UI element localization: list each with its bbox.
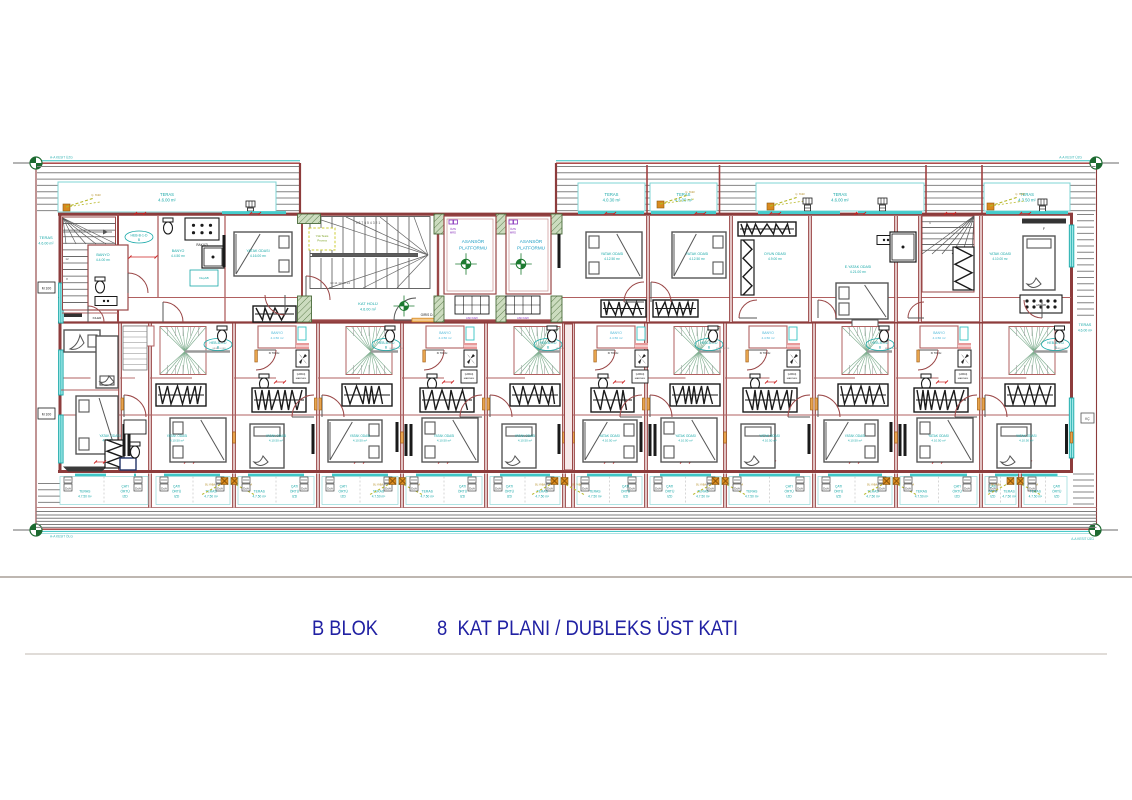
svg-text:ASANSÖR: ASANSÖR [462, 238, 485, 244]
svg-text:TERAS: TERAS [422, 490, 434, 494]
svg-text:4.4.50 m²: 4.4.50 m² [932, 336, 945, 340]
svg-text:4.3.50 m²: 4.3.50 m² [1018, 198, 1036, 203]
svg-text:MAKINESI: MAKINESI [464, 377, 475, 380]
svg-text:DẏA: DẏA [385, 487, 391, 491]
svg-text:4.10.50 m²: 4.10.50 m² [170, 439, 184, 443]
svg-text:ÖRTÜ: ÖRTÜ [290, 490, 300, 494]
svg-text:8 KAT PLANI / DUBLEKS ÜST KAT: 8 KAT PLANI / DUBLEKS ÜST KATI [437, 616, 738, 640]
svg-text:ÇAMAŞ: ÇAMAŞ [465, 373, 474, 376]
svg-text:4.10.50 m²: 4.10.50 m² [353, 439, 367, 443]
svg-text:YATAK ODASI: YATAK ODASI [350, 434, 371, 438]
svg-text:DuşAB: DuşAB [199, 276, 208, 280]
svg-text:4.12.50 m²: 4.12.50 m² [604, 257, 621, 261]
svg-text:ÇATI: ÇATI [340, 485, 347, 489]
svg-text:4.4.00 m²: 4.4.00 m² [96, 258, 111, 262]
svg-text:YATAK ODASI: YATAK ODASI [246, 249, 269, 253]
svg-text:YATAK ODASI: YATAK ODASI [675, 434, 696, 438]
svg-text:4.10.50 m²: 4.10.50 m² [762, 439, 776, 443]
svg-text:OYUN ODASI: OYUN ODASI [764, 252, 786, 256]
svg-text:ÖRTÜ: ÖRTÜ [339, 490, 349, 494]
svg-text:4.0.30 m²: 4.0.30 m² [603, 198, 621, 203]
svg-text:A-A KESIT ÜZG: A-A KESIT ÜZG [1071, 537, 1094, 541]
svg-text:DẏA: DẏA [582, 487, 588, 491]
svg-text:ÇATI: ÇATI [1053, 485, 1060, 489]
svg-text:Ç. %33: Ç. %33 [795, 192, 805, 196]
svg-text:YATAK ODASI: YATAK ODASI [928, 434, 949, 438]
svg-text:YATAK ODASI: YATAK ODASI [167, 434, 188, 438]
svg-text:4.10.00 m²: 4.10.00 m² [992, 257, 1007, 261]
svg-text:IZD: IZD [292, 495, 298, 499]
svg-text:ÖRTÜ: ÖRTÜ [458, 490, 468, 494]
svg-text:4.4.50 m²: 4.4.50 m² [438, 336, 451, 340]
svg-text:4.6.00 m²: 4.6.00 m² [831, 198, 849, 203]
svg-text:SU.YABA: SU.YABA [696, 484, 707, 487]
svg-text:JAKUZI: JAKUZI [1036, 303, 1047, 307]
svg-text:ÇATI: ÇATI [785, 485, 792, 489]
svg-text:BANYO: BANYO [762, 331, 774, 335]
svg-text:9 8 7 6 5 4 3 2 1: 9 8 7 6 5 4 3 2 1 [356, 221, 381, 225]
svg-text:4.7.50 m²: 4.7.50 m² [420, 495, 433, 499]
svg-text:DẏA: DẏA [734, 487, 740, 491]
svg-text:DẏA: DẏA [301, 487, 307, 491]
svg-text:KI TOCAI: KI TOCAI [760, 352, 771, 355]
svg-text:4.7.50 m²: 4.7.50 m² [204, 495, 217, 499]
svg-text:TERAS: TERAS [833, 192, 847, 197]
svg-text:Ç. %33: Ç. %33 [91, 193, 101, 197]
svg-text:KAT HOLÜ: KAT HOLÜ [358, 301, 378, 306]
svg-text:ÇATI: ÇATI [121, 485, 128, 489]
svg-text:BANYO: BANYO [933, 331, 945, 335]
svg-text:MAKINESI: MAKINESI [787, 377, 798, 380]
svg-text:4.6.00 m²: 4.6.00 m² [38, 242, 54, 246]
svg-text:A-A KESIT ÜZG: A-A KESIT ÜZG [50, 156, 73, 160]
svg-text:IZD: IZD [990, 495, 996, 499]
svg-text:IZD: IZD [623, 495, 629, 499]
svg-text:ÇAMAŞ: ÇAMAŞ [636, 373, 645, 376]
svg-text:TERAS: TERAS [1003, 490, 1015, 494]
svg-text:4.7.50 m²: 4.7.50 m² [1002, 495, 1015, 499]
svg-text:IZD: IZD [460, 495, 466, 499]
svg-text:DẏA: DẏA [135, 487, 141, 491]
svg-text:KÇ: KÇ [1085, 417, 1090, 421]
svg-text:IZD: IZD [122, 495, 128, 499]
svg-text:ÇATI: ÇATI [954, 485, 961, 489]
svg-text:DẏA: DẏA [964, 487, 970, 491]
svg-text:ÖRTÜ: ÖRTÜ [505, 490, 515, 494]
svg-text:DẏA: DẏA [469, 487, 475, 491]
svg-text:ÇATI: ÇATI [459, 485, 466, 489]
svg-text:ÖRTÜ: ÖRTÜ [665, 490, 675, 494]
svg-text:YATAK ODASI: YATAK ODASI [601, 252, 624, 256]
svg-text:4.7.50 m²: 4.7.50 m² [372, 495, 385, 499]
svg-text:DẏA: DẏA [879, 487, 885, 491]
svg-text:4.4.50 m²: 4.4.50 m² [609, 336, 622, 340]
svg-text:SU.YABA: SU.YABA [535, 484, 546, 487]
svg-text:ÖRTÜ: ÖRTÜ [784, 490, 794, 494]
svg-text:Ç. %33: Ç. %33 [685, 190, 695, 194]
svg-text:ÖRTÜ: ÖRTÜ [172, 490, 182, 494]
svg-text:KI TOCAI: KI TOCAI [931, 352, 942, 355]
svg-text:ASANSÖR: ASANSÖR [520, 238, 543, 244]
svg-text:DẏA: DẏA [327, 487, 333, 491]
svg-text:ÇATI: ÇATI [622, 485, 629, 489]
svg-text:ASN KAPI: ASN KAPI [517, 316, 529, 320]
svg-text:Prızma: Prızma [317, 239, 327, 243]
svg-text:YATAK ODASI: YATAK ODASI [686, 252, 709, 256]
svg-text:KI TOCAI: KI TOCAI [269, 352, 280, 355]
svg-text:B BLOK: B BLOK [312, 616, 379, 640]
svg-text:MRD: MRD [450, 231, 456, 235]
svg-text:4.4.50 m²: 4.4.50 m² [761, 336, 774, 340]
svg-text:YATAK ODASI: YATAK ODASI [599, 434, 620, 438]
svg-text:IZD: IZD [786, 495, 792, 499]
svg-text:4.7.50 m²: 4.7.50 m² [696, 495, 709, 499]
svg-text:ÇATI: ÇATI [506, 485, 513, 489]
svg-text:IZD: IZD [174, 495, 180, 499]
svg-text:YATAK ODASI: YATAK ODASI [434, 434, 455, 438]
svg-text:KILER: KILER [93, 316, 103, 320]
svg-text:BANYO: BANYO [271, 331, 283, 335]
svg-text:A-A KESIT ÜZG: A-A KESIT ÜZG [1059, 156, 1082, 160]
svg-text:4.4.50 m²: 4.4.50 m² [171, 254, 186, 258]
svg-text:MAKINESI: MAKINESI [635, 377, 646, 380]
svg-text:DẏA: DẏA [495, 487, 501, 491]
svg-text:4.16.00 m²: 4.16.00 m² [250, 254, 267, 258]
svg-text:DẏA: DẏA [161, 487, 167, 491]
svg-text:TERAS: TERAS [746, 490, 758, 494]
svg-text:4.12.50 m²: 4.12.50 m² [689, 257, 706, 261]
svg-text:ÇATI: ÇATI [666, 485, 673, 489]
svg-text:4.7.50 m²: 4.7.50 m² [252, 495, 265, 499]
svg-text:A-A KESIT ÖLG: A-A KESIT ÖLG [50, 535, 73, 539]
svg-text:4.10.50 m²: 4.10.50 m² [518, 439, 532, 443]
svg-text:4.10.50 m²: 4.10.50 m² [269, 439, 283, 443]
svg-text:DẏA: DẏA [797, 487, 803, 491]
svg-text:4.10.50 m²: 4.10.50 m² [678, 439, 692, 443]
svg-text:TERAS: TERAS [916, 490, 928, 494]
svg-text:ASN KAPI: ASN KAPI [466, 316, 478, 320]
svg-text:4.6.00 m²: 4.6.00 m² [1078, 329, 1093, 333]
svg-text:TERAS: TERAS [254, 490, 266, 494]
svg-text:12: 12 [65, 257, 69, 261]
svg-text:4.7.50 m²: 4.7.50 m² [588, 495, 601, 499]
svg-text:4.21.00 m²: 4.21.00 m² [850, 270, 867, 274]
svg-text:ÖRTÜ: ÖRTÜ [120, 490, 130, 494]
svg-text:10 11 12 13 14: 10 11 12 13 14 [330, 281, 350, 285]
svg-text:YATAK ODASI: YATAK ODASI [845, 434, 866, 438]
svg-text:YATAK ODASI: YATAK ODASI [989, 252, 1011, 256]
svg-text:IZD: IZD [341, 495, 347, 499]
svg-text:4.7.50 m²: 4.7.50 m² [745, 495, 758, 499]
svg-text:DẏA: DẏA [411, 487, 417, 491]
svg-text:ÖRTÜ: ÖRTÜ [834, 490, 844, 494]
svg-text:DẏA: DẏA [217, 487, 223, 491]
svg-text:DẏA: DẏA [65, 487, 71, 491]
svg-text:ÇATI: ÇATI [173, 485, 180, 489]
svg-text:4.7.50 m²: 4.7.50 m² [915, 495, 928, 499]
svg-text:ÇAMAŞ: ÇAMAŞ [959, 373, 968, 376]
svg-text:IZD: IZD [836, 495, 842, 499]
svg-text:DẏA: DẏA [655, 487, 661, 491]
svg-text:ÇATI: ÇATI [835, 485, 842, 489]
svg-text:4.7.50 m²: 4.7.50 m² [1029, 495, 1042, 499]
svg-text:TERAS: TERAS [1030, 490, 1042, 494]
svg-text:4.10.50 m²: 4.10.50 m² [848, 439, 862, 443]
svg-text:GIRIS D.: GIRIS D. [421, 313, 434, 317]
svg-text:E.YATAK ODASI: E.YATAK ODASI [845, 265, 872, 269]
svg-text:ÇAMAŞ: ÇAMAŞ [297, 373, 306, 376]
svg-text:IZD: IZD [507, 495, 513, 499]
svg-text:SU.YABA: SU.YABA [867, 484, 878, 487]
svg-text:4.10.50 m²: 4.10.50 m² [931, 439, 945, 443]
svg-text:TERAS: TERAS [605, 192, 619, 197]
svg-text:4.10.50 m²: 4.10.50 m² [602, 439, 616, 443]
svg-text:DẏA: DẏA [823, 487, 829, 491]
svg-text:M 100: M 100 [42, 413, 52, 417]
svg-text:PLATFORMU: PLATFORMU [459, 246, 487, 251]
svg-text:DẏA: DẏA [243, 487, 249, 491]
svg-text:4.10.50 m²: 4.10.50 m² [1019, 439, 1033, 443]
svg-text:ÖRTÜ: ÖRTÜ [953, 490, 963, 494]
svg-text:BANYO: BANYO [610, 331, 622, 335]
svg-text:M 100: M 100 [42, 287, 52, 291]
svg-text:MAKINESI: MAKINESI [958, 377, 969, 380]
svg-text:IZD: IZD [955, 495, 961, 499]
svg-text:TERAS: TERAS [39, 235, 53, 240]
svg-text:ÖRTÜ: ÖRTÜ [621, 490, 631, 494]
svg-text:DẏA: DẏA [708, 487, 714, 491]
svg-text:KI TOCAI: KI TOCAI [437, 352, 448, 355]
svg-text:IZD: IZD [667, 495, 673, 499]
svg-text:ÇAMAŞ: ÇAMAŞ [788, 373, 797, 376]
svg-text:ÇATI: ÇATI [291, 485, 298, 489]
svg-text:TERAS: TERAS [160, 192, 174, 197]
svg-text:SU.YABA: SU.YABA [991, 484, 1002, 487]
svg-text:IZD: IZD [1054, 495, 1060, 499]
svg-text:MAKINESI: MAKINESI [296, 377, 307, 380]
svg-text:4.9.00 m²: 4.9.00 m² [768, 257, 783, 261]
svg-text:4.10.50 m²: 4.10.50 m² [437, 439, 451, 443]
svg-text:SU.YABA: SU.YABA [205, 484, 216, 487]
svg-text:Ç. %33: Ç. %33 [1015, 192, 1025, 196]
svg-text:DẏA: DẏA [905, 487, 911, 491]
svg-text:KI TOCAI: KI TOCAI [608, 352, 619, 355]
svg-text:TERAS: TERAS [79, 490, 91, 494]
svg-text:BANYO: BANYO [96, 253, 109, 257]
svg-text:YATAK ODASI: YATAK ODASI [515, 434, 536, 438]
svg-text:4.4.50 m²: 4.4.50 m² [270, 336, 283, 340]
svg-text:MRD: MRD [510, 231, 516, 235]
svg-text:TERAS: TERAS [1079, 323, 1092, 327]
svg-text:4.7.50 m²: 4.7.50 m² [866, 495, 879, 499]
svg-text:4.6.00 m²: 4.6.00 m² [360, 308, 377, 312]
svg-text:YATAK ODASI: YATAK ODASI [99, 434, 120, 438]
svg-text:DẏA: DẏA [547, 487, 553, 491]
svg-text:YATAK ODASI: YATAK ODASI [759, 434, 780, 438]
svg-text:YATAK ODASI: YATAK ODASI [1016, 434, 1037, 438]
svg-text:YATAK ODASI: YATAK ODASI [266, 434, 287, 438]
svg-text:TERAS: TERAS [589, 490, 601, 494]
svg-text:4.6.00 m²: 4.6.00 m² [158, 198, 176, 203]
svg-text:ÖRTÜ: ÖRTÜ [1052, 490, 1062, 494]
svg-text:BANYO: BANYO [439, 331, 451, 335]
svg-text:4.7.50 m²: 4.7.50 m² [535, 495, 548, 499]
svg-text:4.7.50 m²: 4.7.50 m² [78, 495, 91, 499]
svg-text:PLATFORMU: PLATFORMU [517, 246, 545, 251]
svg-text:SU.YABA: SU.YABA [373, 484, 384, 487]
svg-text:BANYO: BANYO [172, 249, 185, 253]
svg-text:Yük Tesis: Yük Tesis [316, 234, 329, 238]
